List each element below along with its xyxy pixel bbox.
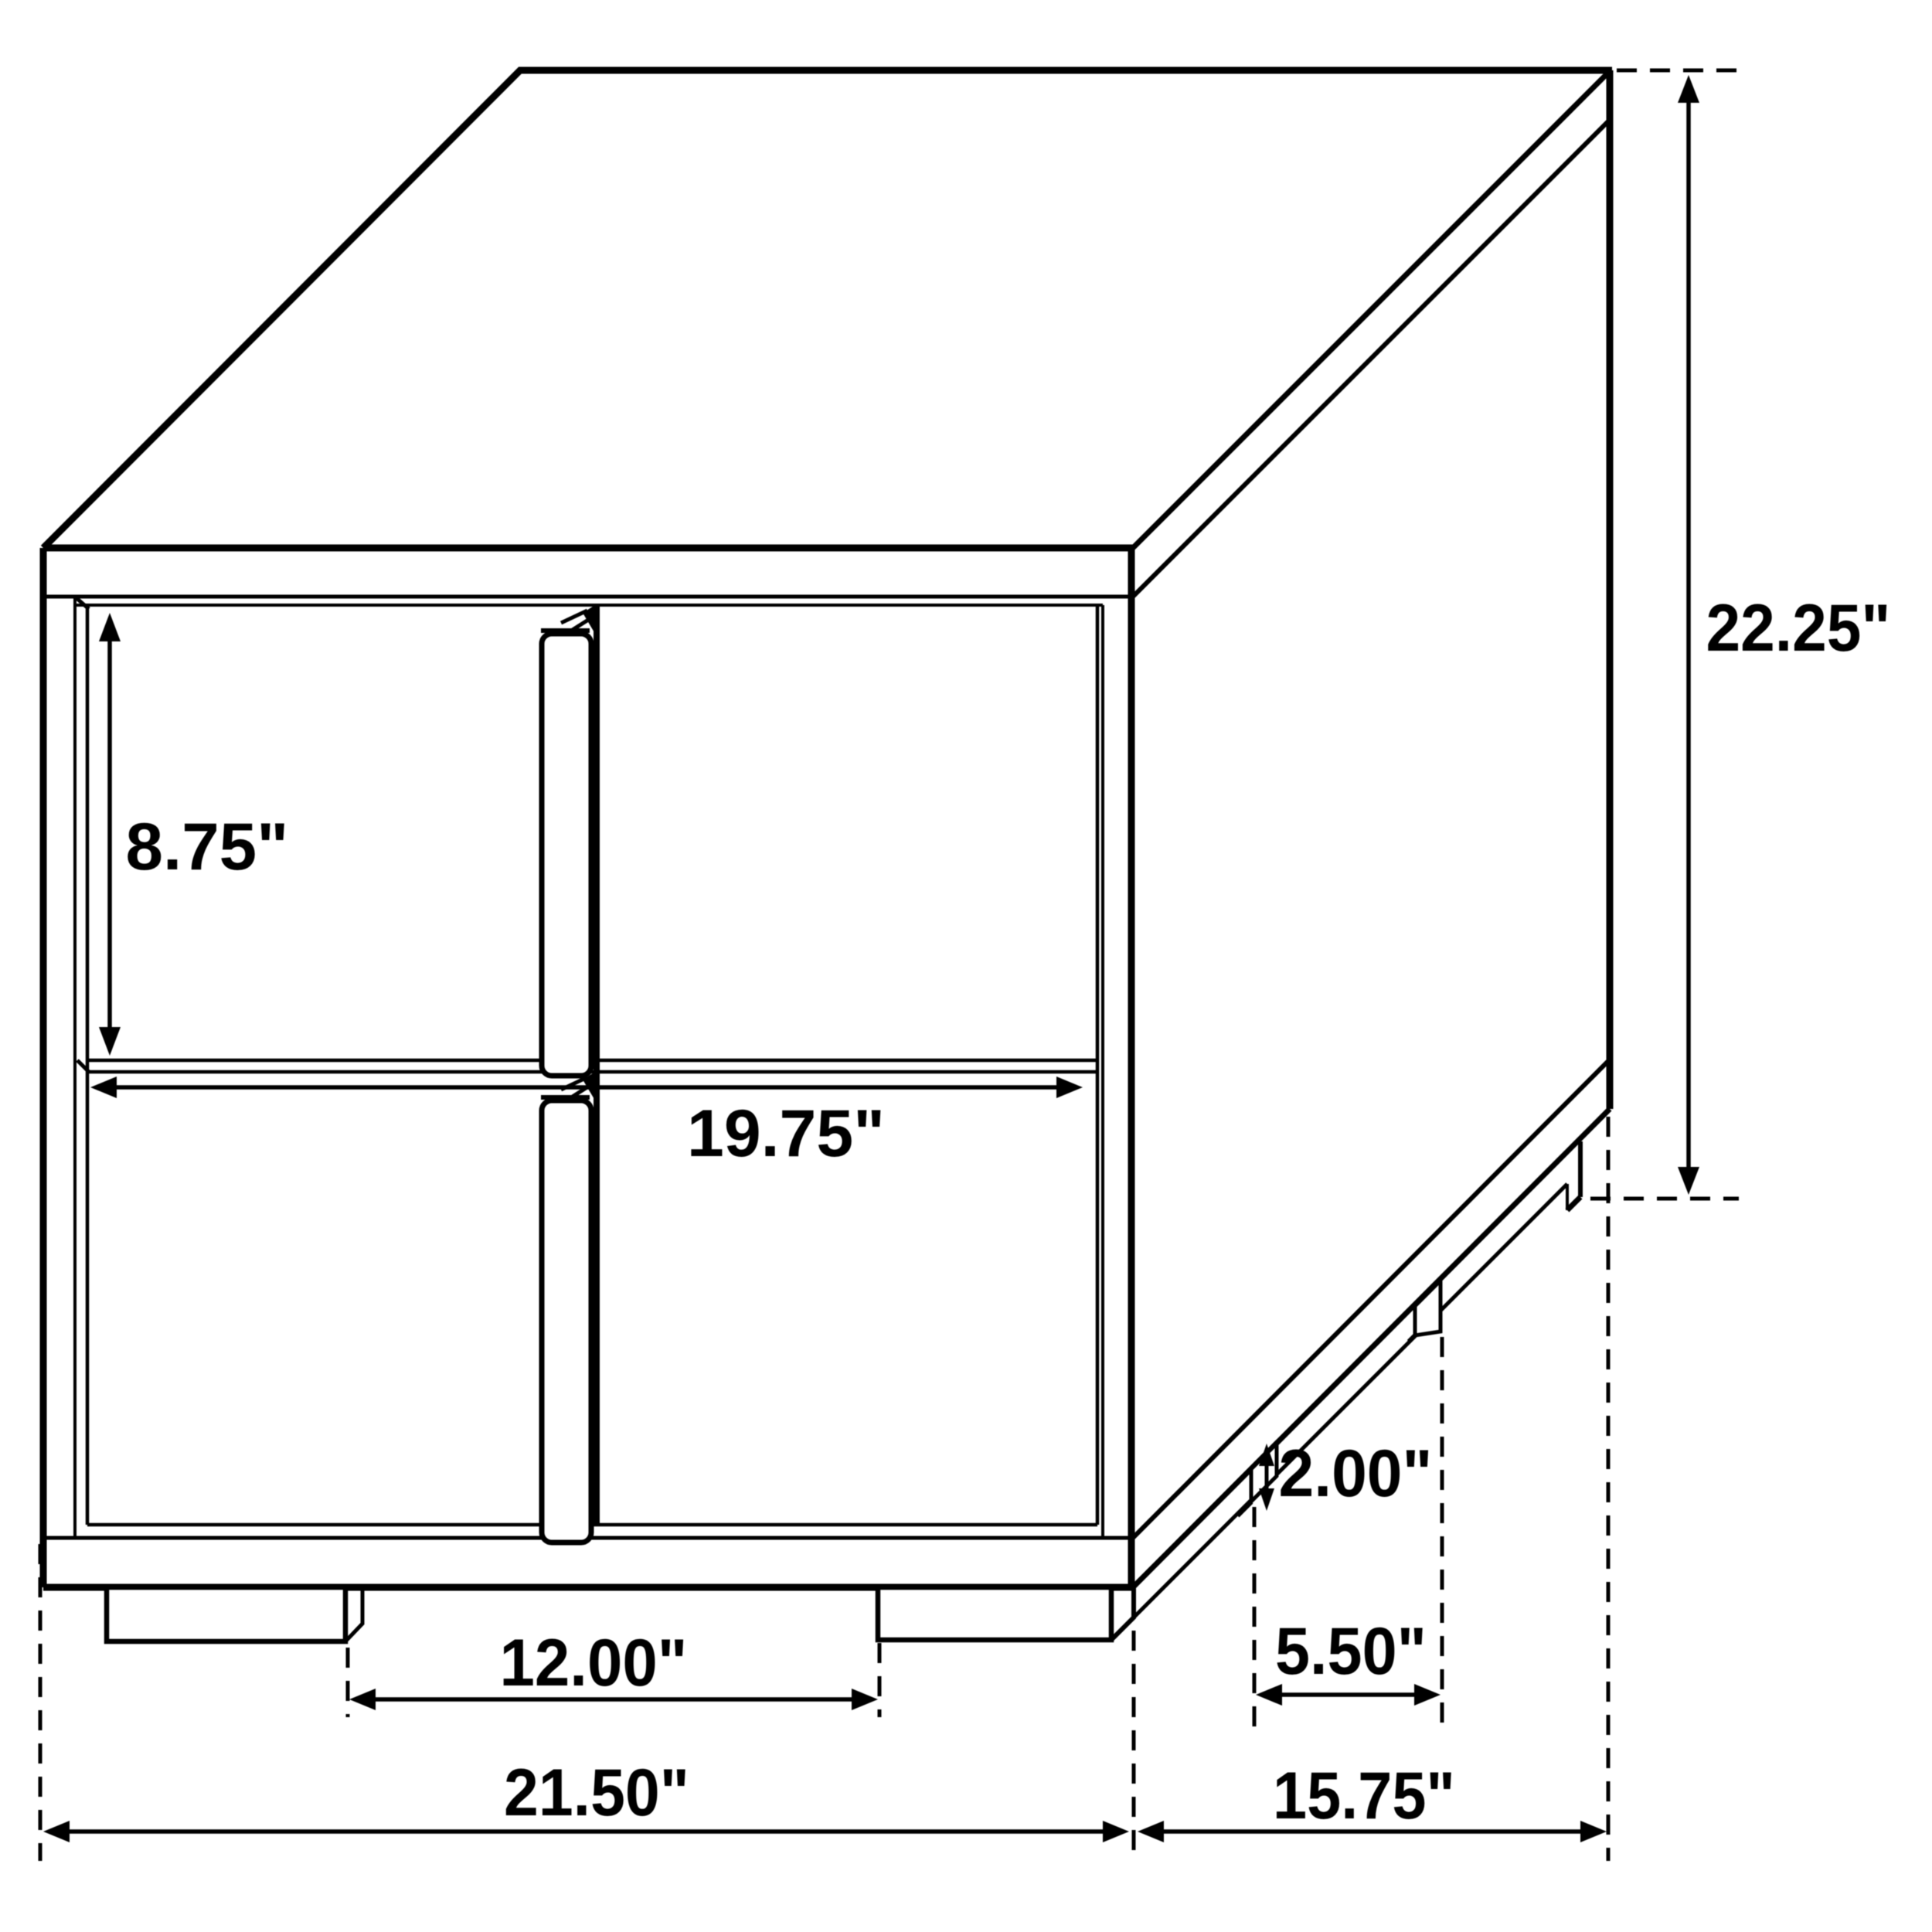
svg-text:5.50": 5.50" (1275, 1614, 1427, 1689)
svg-text:21.50": 21.50" (504, 1756, 689, 1830)
svg-text:19.75": 19.75" (687, 1097, 885, 1171)
svg-text:2.00": 2.00" (1279, 1437, 1433, 1511)
svg-text:22.25": 22.25" (1706, 591, 1891, 665)
svg-text:15.75": 15.75" (1273, 1759, 1455, 1833)
svg-text:8.75": 8.75" (126, 810, 289, 884)
svg-text:12.00": 12.00" (500, 1626, 688, 1700)
